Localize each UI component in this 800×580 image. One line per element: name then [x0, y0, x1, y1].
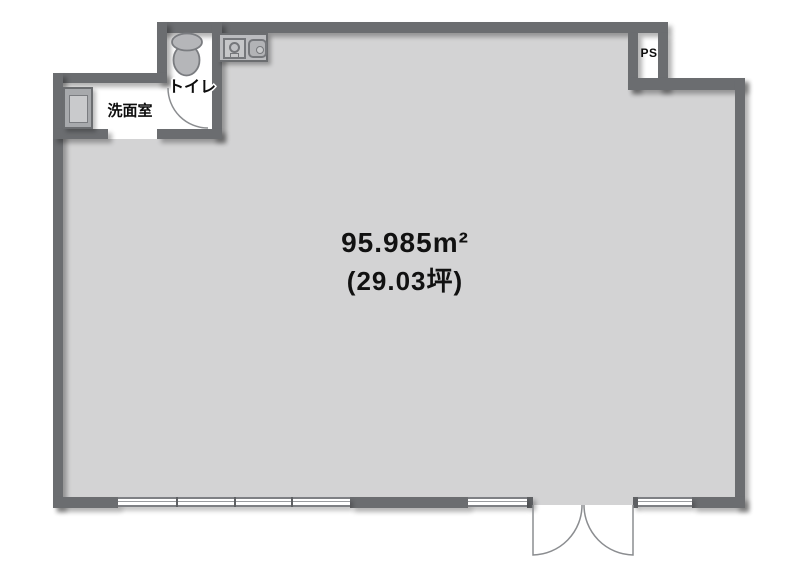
washroom-label: 洗面室 [107, 100, 152, 121]
window-glass-line [638, 501, 692, 502]
pipe-space-label: PS [640, 46, 657, 60]
window-glass-line [468, 501, 527, 502]
area-square-meters: 95.985m² [341, 224, 469, 262]
floor-plan: トイレ 洗面室 PS 95.985m² (29.03坪) [0, 0, 800, 580]
bottom-wall-left-corner [53, 497, 118, 508]
washroom-bottom-wall-left [53, 129, 108, 139]
main-floor-top-strip [222, 33, 628, 139]
washbasin-icon [63, 87, 93, 129]
double-door-icon [525, 495, 643, 561]
main-floor-right-strip [628, 90, 735, 139]
stove-compartment [223, 38, 246, 59]
top-wall [157, 22, 668, 33]
burner-icon [229, 42, 240, 53]
bottom-wall-right-corner [692, 497, 745, 508]
window-mullion [234, 497, 236, 507]
window-icon [118, 497, 350, 507]
window-mullion [176, 497, 178, 507]
top-right-step-wall [628, 78, 745, 90]
washbasin-bowl [69, 95, 88, 123]
area-label: 95.985m² (29.03坪) [341, 224, 469, 300]
bottom-wall-center [350, 497, 468, 508]
toilet-label: トイレ [168, 73, 216, 97]
window-icon [638, 497, 692, 507]
area-tsubo: (29.03坪) [341, 262, 469, 300]
kitchen-sink-icon [218, 33, 268, 62]
window-icon [468, 497, 527, 507]
window-mullion [291, 497, 293, 507]
main-floor [63, 139, 735, 497]
sink-drain-icon [256, 46, 264, 54]
stove-dial [230, 53, 239, 58]
sink-basin [248, 39, 267, 58]
right-wall [735, 78, 745, 508]
washroom-doorway [108, 129, 157, 139]
washroom-top-wall [53, 73, 167, 83]
